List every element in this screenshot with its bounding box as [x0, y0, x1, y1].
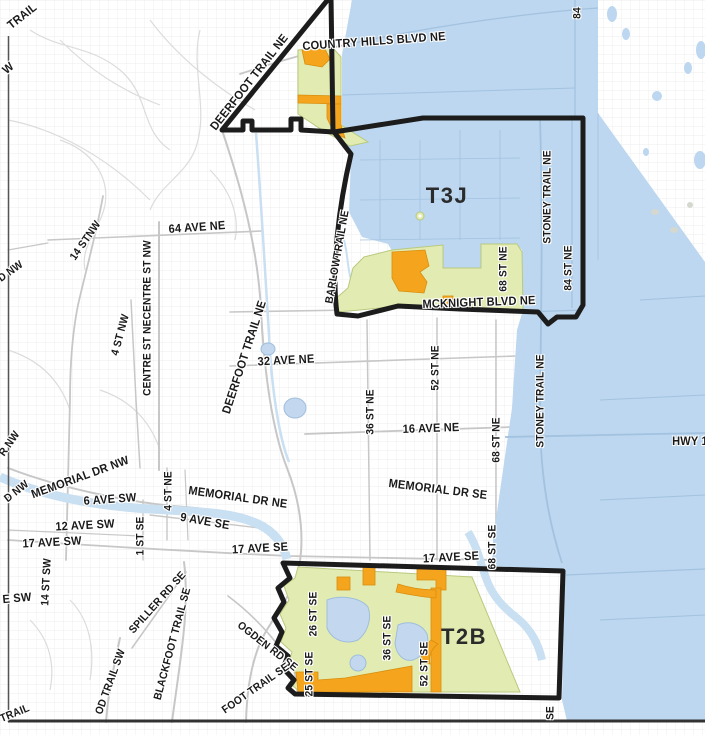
- pond: [284, 398, 306, 418]
- t3j-boundary-vertical: [331, 0, 333, 132]
- map-canvas: [0, 0, 705, 735]
- t2b-pond-small: [350, 655, 366, 671]
- t2b-pond-west: [327, 597, 370, 642]
- pond: [261, 343, 275, 355]
- map: TRAILWCOUNTRY HILLS BLVD NEDEERFOOT TRAI…: [0, 0, 705, 735]
